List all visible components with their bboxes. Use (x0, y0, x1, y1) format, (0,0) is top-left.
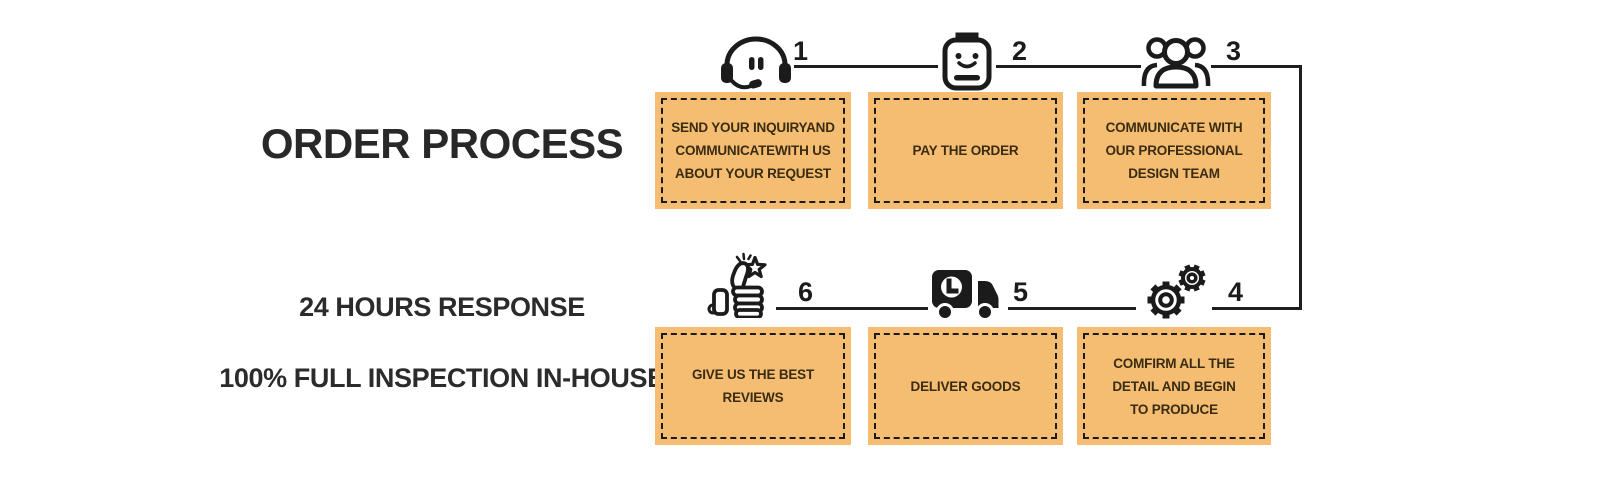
step-number-2: 2 (1012, 38, 1027, 65)
design-team-icon (1141, 33, 1211, 91)
gears-icon (1136, 258, 1212, 322)
page-title: ORDER PROCESS (230, 120, 654, 168)
order-process-infographic: ORDER PROCESS 24 HOURS RESPONSE 100% FUL… (0, 0, 1600, 493)
step-number-4: 4 (1228, 279, 1243, 306)
step-number-5: 5 (1013, 279, 1028, 306)
tagline-response: 24 HOURS RESPONSE (212, 292, 672, 323)
headset-icon (718, 34, 794, 90)
step-box-4: COMFIRM ALL THEDETAIL AND BEGINTO PRODUC… (1077, 327, 1271, 445)
step-box-2: PAY THE ORDER (868, 92, 1063, 209)
step-number-1: 1 (793, 38, 808, 65)
thumbs-up-star-icon (706, 252, 776, 318)
step-box-5: DELIVER GOODS (868, 327, 1063, 445)
tagline-inspection: 100% FULL INSPECTION IN-HOUSE (212, 363, 672, 394)
step-number-6: 6 (798, 279, 813, 306)
delivery-truck-icon (928, 266, 1008, 324)
step-label-6: GIVE US THE BESTREVIEWS (692, 363, 814, 409)
step-number-3: 3 (1226, 38, 1241, 65)
step-label-1: SEND YOUR INQUIRYANDCOMMUNICATEWITH USAB… (671, 116, 835, 185)
step-box-1: SEND YOUR INQUIRYANDCOMMUNICATEWITH USAB… (655, 92, 851, 209)
step-label-5: DELIVER GOODS (911, 375, 1021, 398)
step-label-4: COMFIRM ALL THEDETAIL AND BEGINTO PRODUC… (1112, 352, 1235, 421)
notepad-smiley-icon (938, 31, 996, 91)
connector-bottom-line (740, 307, 1302, 310)
step-box-3: COMMUNICATE WITHOUR PROFESSIONALDESIGN T… (1077, 92, 1271, 209)
step-label-3: COMMUNICATE WITHOUR PROFESSIONALDESIGN T… (1105, 116, 1242, 185)
step-label-2: PAY THE ORDER (913, 139, 1019, 162)
connector-right-line (1299, 65, 1302, 310)
step-box-6: GIVE US THE BESTREVIEWS (655, 327, 851, 445)
connector-top-line (762, 65, 1302, 68)
